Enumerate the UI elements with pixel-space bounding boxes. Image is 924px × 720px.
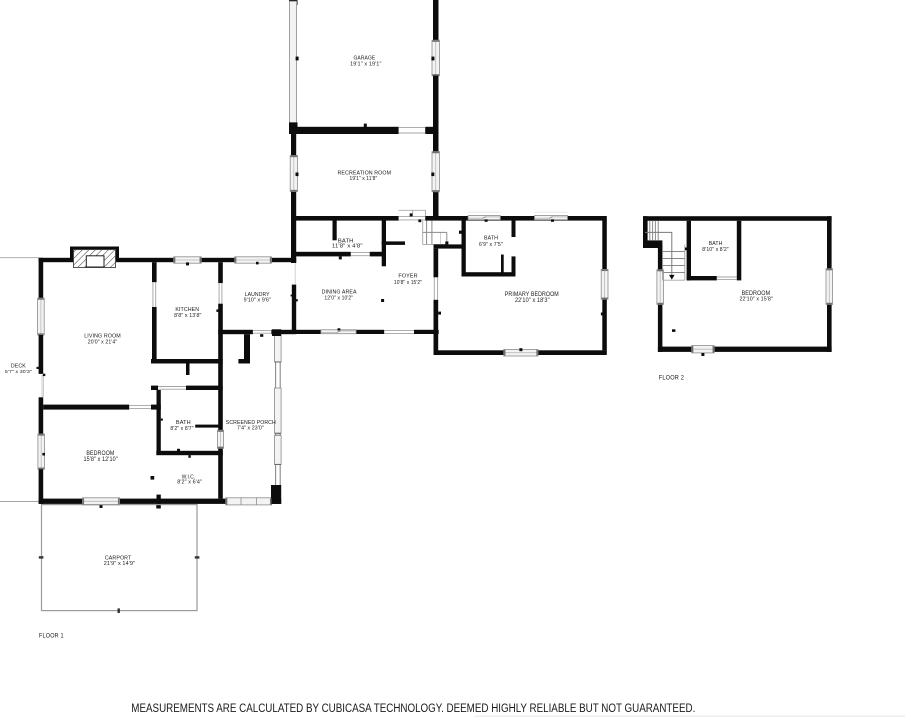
svg-text:BATH: BATH [484, 236, 498, 242]
svg-text:8'2" x 8'7": 8'2" x 8'7" [170, 426, 193, 432]
svg-text:15'8" x 12'10": 15'8" x 12'10" [83, 456, 117, 463]
svg-text:BATH: BATH [709, 241, 723, 247]
svg-text:MEASUREMENTS ARE CALCULATED BY: MEASUREMENTS ARE CALCULATED BY CUBICASA … [131, 701, 695, 715]
svg-text:22'10" x 15'8": 22'10" x 15'8" [739, 297, 773, 303]
svg-text:9'10" x 9'6": 9'10" x 9'6" [244, 298, 271, 304]
svg-text:BATH: BATH [176, 420, 191, 426]
svg-text:19'1" x 11'8": 19'1" x 11'8" [350, 176, 378, 182]
svg-text:21'9" x 14'9": 21'9" x 14'9" [104, 561, 135, 567]
svg-text:8'8" x 13'8": 8'8" x 13'8" [174, 313, 201, 319]
svg-text:PRIMARY BEDROOM: PRIMARY BEDROOM [505, 291, 559, 298]
svg-text:FLOOR 2: FLOOR 2 [659, 375, 684, 382]
svg-text:6'9" x 7'5": 6'9" x 7'5" [479, 242, 503, 248]
svg-text:8'10" x 8'2": 8'10" x 8'2" [702, 247, 728, 253]
svg-text:KITCHEN: KITCHEN [175, 307, 199, 313]
svg-text:FLOOR 1: FLOOR 1 [39, 632, 64, 639]
svg-text:FOYER: FOYER [398, 273, 417, 279]
svg-text:12'0" x 10'2": 12'0" x 10'2" [324, 296, 353, 302]
svg-text:10'8" x 15'2": 10'8" x 15'2" [394, 280, 422, 286]
svg-text:8'2" x 6'4": 8'2" x 6'4" [177, 480, 202, 486]
svg-text:7'4" x 23'0": 7'4" x 23'0" [237, 426, 264, 432]
svg-text:22'10" x 18'3": 22'10" x 18'3" [515, 298, 550, 304]
svg-text:11'8" x 4'8": 11'8" x 4'8" [332, 243, 363, 249]
svg-text:20'0" x 21'4": 20'0" x 21'4" [88, 339, 118, 345]
svg-text:5'7" x 30'3": 5'7" x 30'3" [5, 369, 32, 375]
svg-text:DECK: DECK [11, 364, 27, 370]
svg-text:19'1" x 19'1": 19'1" x 19'1" [350, 61, 381, 67]
